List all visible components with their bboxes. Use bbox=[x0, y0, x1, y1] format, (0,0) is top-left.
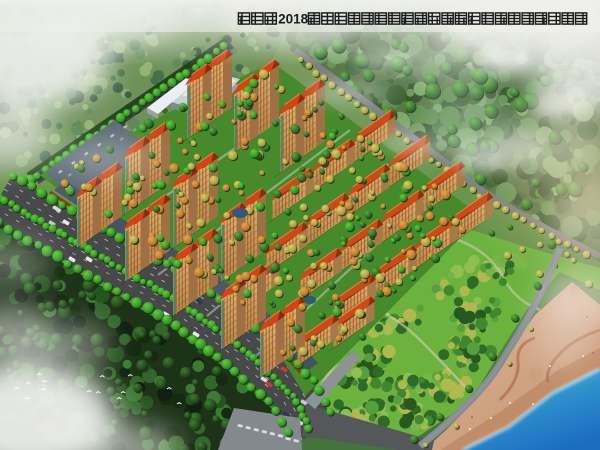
svg-text:2018: 2018 bbox=[278, 12, 309, 27]
